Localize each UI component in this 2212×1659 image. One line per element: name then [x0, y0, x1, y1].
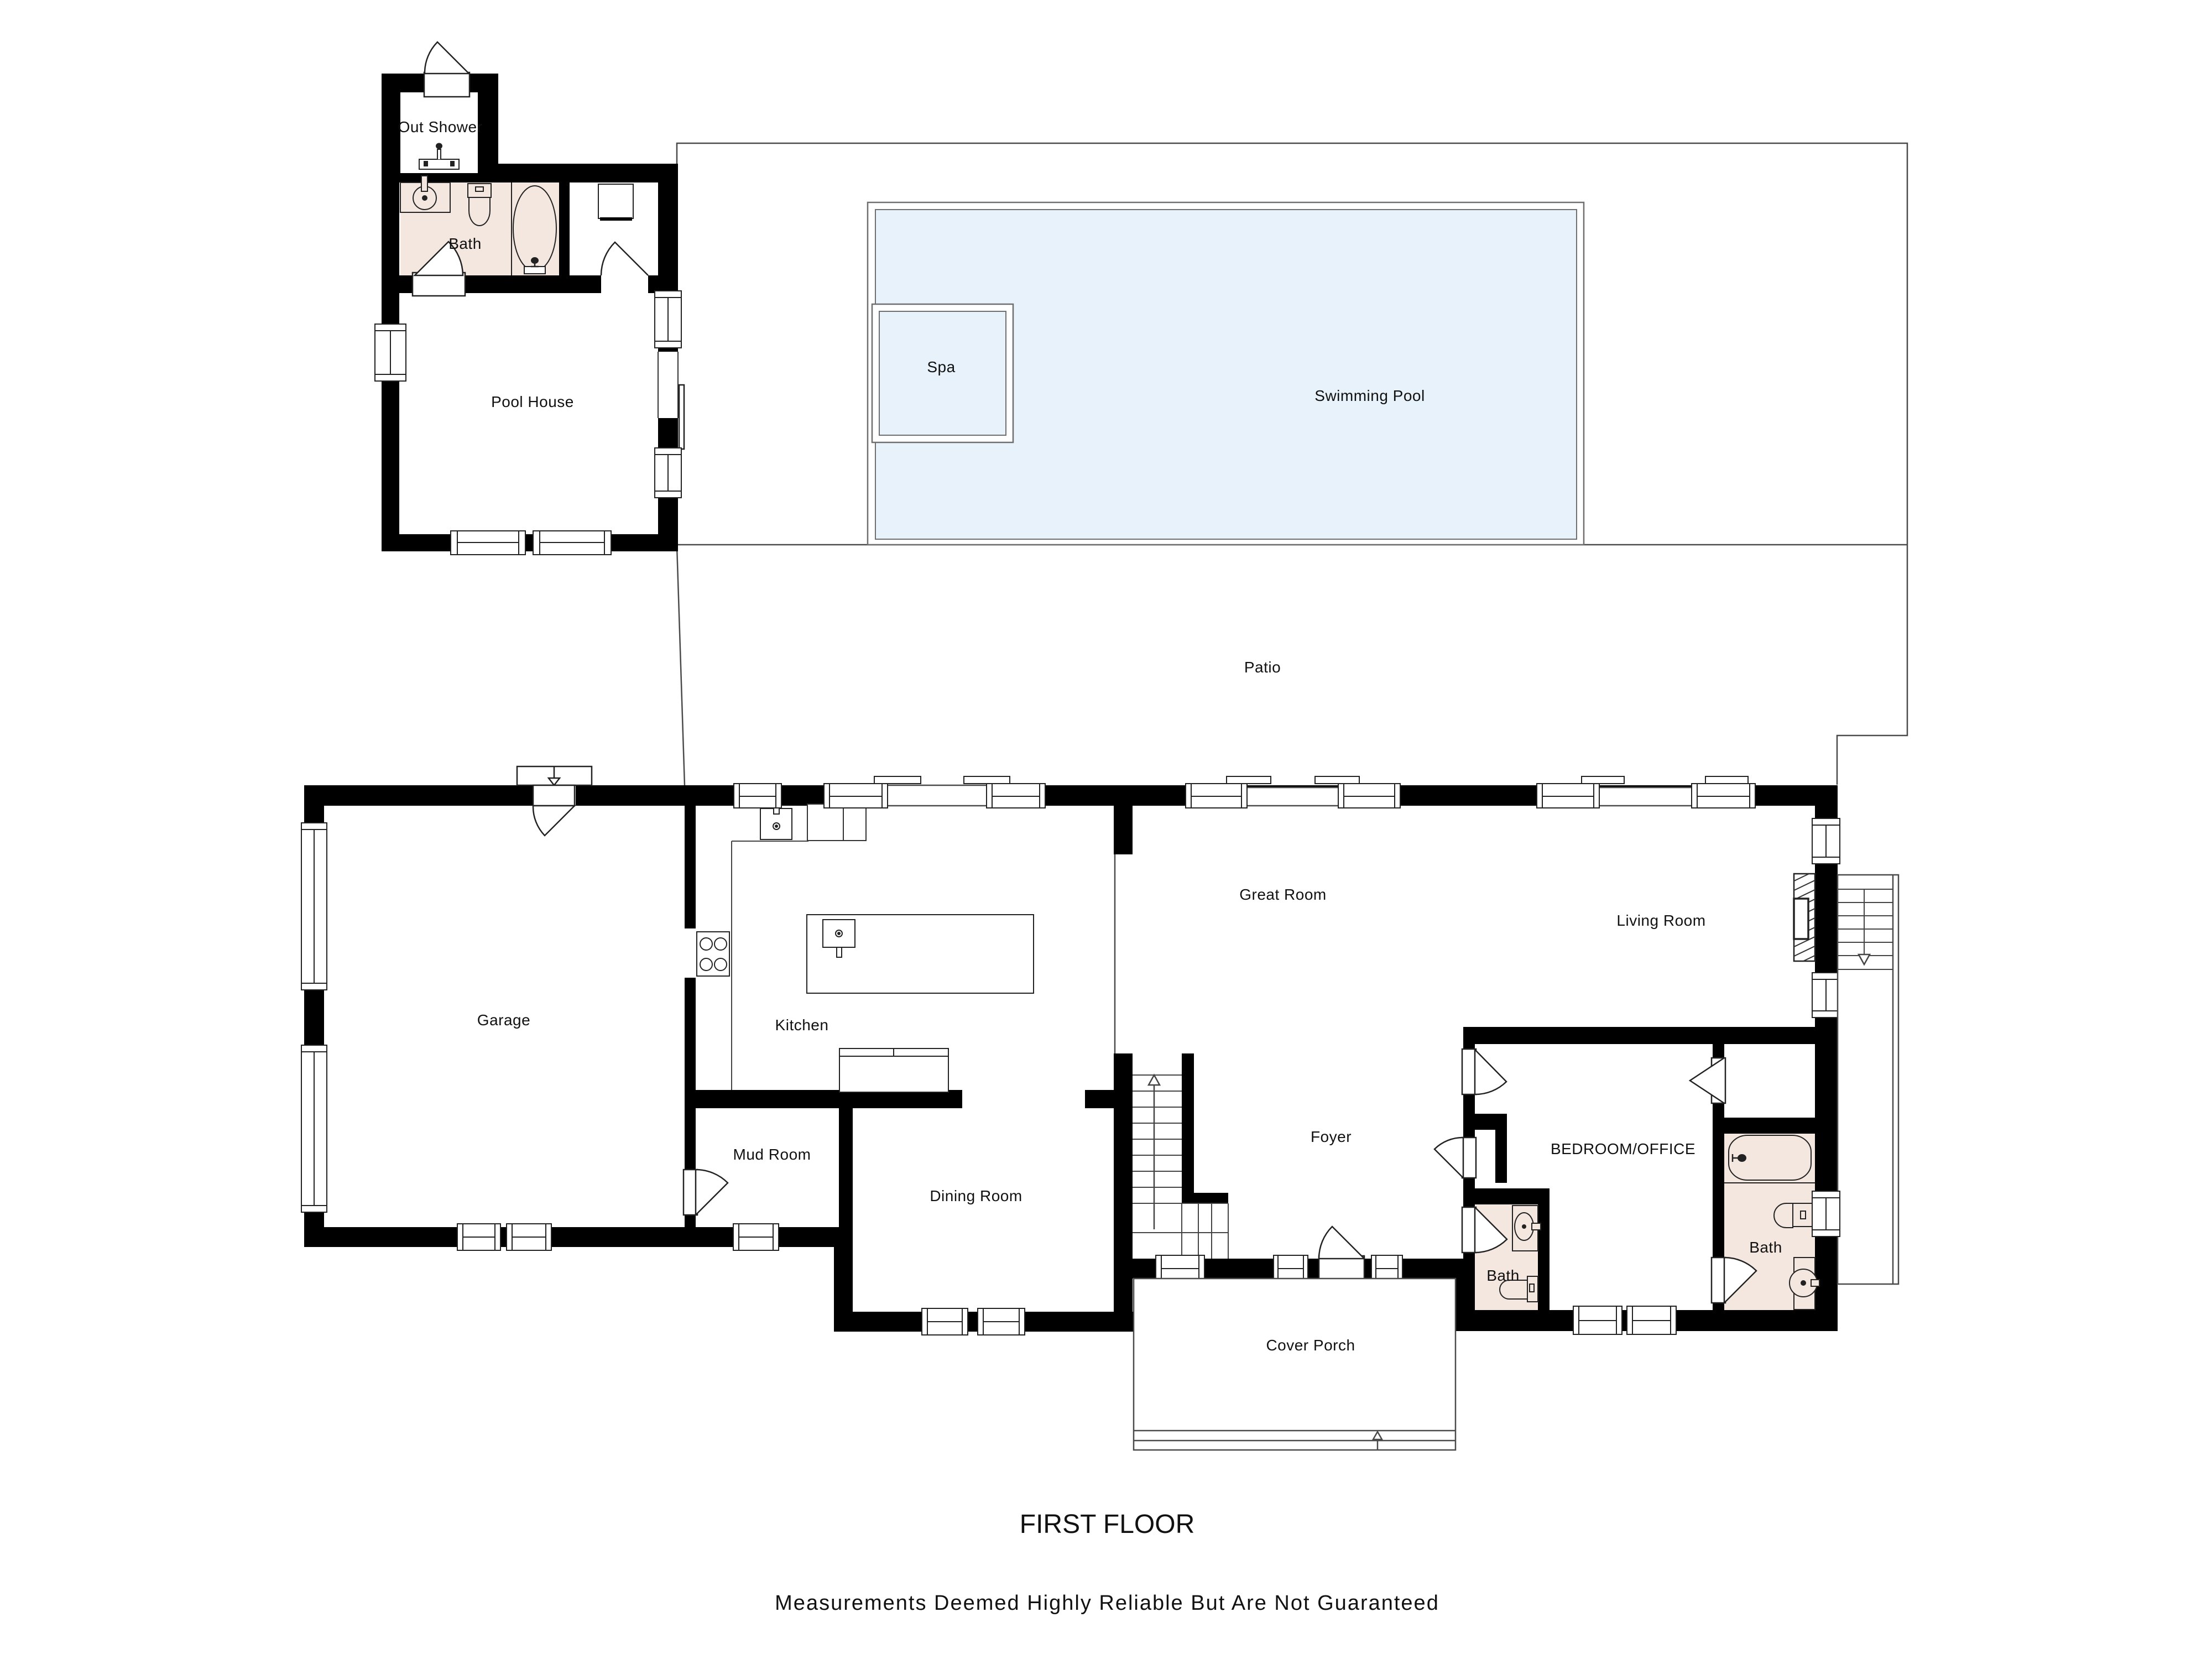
- svg-text:Cover Porch: Cover Porch: [1266, 1337, 1355, 1354]
- svg-text:Great Room: Great Room: [1239, 886, 1327, 903]
- svg-text:Bath: Bath: [448, 235, 482, 252]
- svg-text:Measurements Deemed Highly Rel: Measurements Deemed Highly Reliable But …: [775, 1592, 1439, 1615]
- svg-text:Spa: Spa: [927, 358, 955, 375]
- svg-text:Dining Room: Dining Room: [930, 1187, 1022, 1204]
- svg-text:Living Room: Living Room: [1616, 912, 1705, 929]
- svg-text:Foyer: Foyer: [1311, 1128, 1352, 1145]
- svg-text:Bath: Bath: [1486, 1267, 1520, 1284]
- svg-text:Patio: Patio: [1244, 659, 1281, 676]
- svg-text:Out Shower: Out Shower: [398, 118, 483, 135]
- svg-text:Garage: Garage: [477, 1011, 530, 1029]
- svg-text:FIRST FLOOR: FIRST FLOOR: [1020, 1510, 1194, 1539]
- svg-text:Bath: Bath: [1749, 1239, 1782, 1256]
- svg-text:Kitchen: Kitchen: [775, 1016, 829, 1034]
- svg-text:BEDROOM/OFFICE: BEDROOM/OFFICE: [1551, 1140, 1695, 1157]
- svg-text:Pool House: Pool House: [491, 393, 574, 410]
- svg-text:Mud Room: Mud Room: [733, 1146, 811, 1163]
- svg-text:Swimming Pool: Swimming Pool: [1314, 387, 1425, 404]
